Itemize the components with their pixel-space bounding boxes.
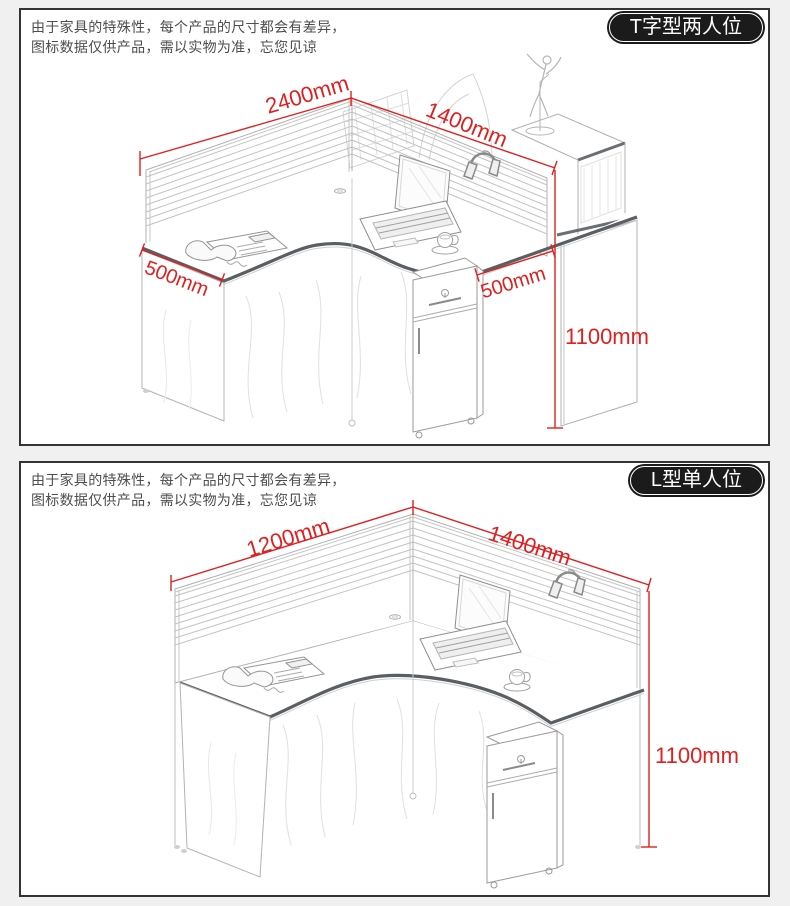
pedestal-cabinet <box>487 722 563 888</box>
dim-label-height: 1100mm <box>565 324 649 349</box>
disclaimer-line-1: 由于家具的特殊性，每个产品的尺寸都会有差异， <box>31 470 346 490</box>
caster-wheel <box>491 882 497 888</box>
t-type-workstation-drawing: 2400mm 1400mm 500mm 500mm 1100mm <box>21 10 768 444</box>
caster-wheel <box>416 432 422 438</box>
desk-side-panel <box>180 683 270 877</box>
disclaimer-text: 由于家具的特殊性，每个产品的尺寸都会有差异， 图标数据仅供产品，需以实物为准，忘… <box>31 17 346 57</box>
headphones <box>549 570 585 598</box>
badge-t-type-label: T字型两人位 <box>609 13 763 42</box>
l-type-workstation-drawing: 1200mm 1400mm 1100mm <box>21 463 768 895</box>
panel-t-type-workstation: 由于家具的特殊性，每个产品的尺寸都会有差异， 图标数据仅供产品，需以实物为准，忘… <box>19 8 770 446</box>
dim-label-height: 1100mm <box>655 743 739 768</box>
disclaimer-line-2: 图标数据仅供产品，需以实物为准，忘您见谅 <box>31 37 346 57</box>
panel-l-type-workstation: 由于家具的特殊性，每个产品的尺寸都会有差异， 图标数据仅供产品，需以实物为准，忘… <box>19 461 770 897</box>
disclaimer-line-1: 由于家具的特殊性，每个产品的尺寸都会有差异， <box>31 17 346 37</box>
dim-line-2400 <box>140 98 351 159</box>
badge-l-type-label: L型单人位 <box>630 466 763 495</box>
pedestal-cabinet <box>413 258 483 438</box>
cable-grommet <box>390 615 401 619</box>
disclaimer-text: 由于家具的特殊性，每个产品的尺寸都会有差异， 图标数据仅供产品，需以实物为准，忘… <box>31 470 346 510</box>
dim-label-main-width: 1200mm <box>244 513 333 562</box>
disclaimer-line-2: 图标数据仅供产品，需以实物为准，忘您见谅 <box>31 490 346 510</box>
badge-l-type: L型单人位 <box>628 464 765 497</box>
badge-t-type: T字型两人位 <box>607 11 765 44</box>
cable-grommet <box>335 189 346 193</box>
dim-label-return-width: 1400mm <box>422 97 511 152</box>
mannequin-figure <box>527 54 561 117</box>
